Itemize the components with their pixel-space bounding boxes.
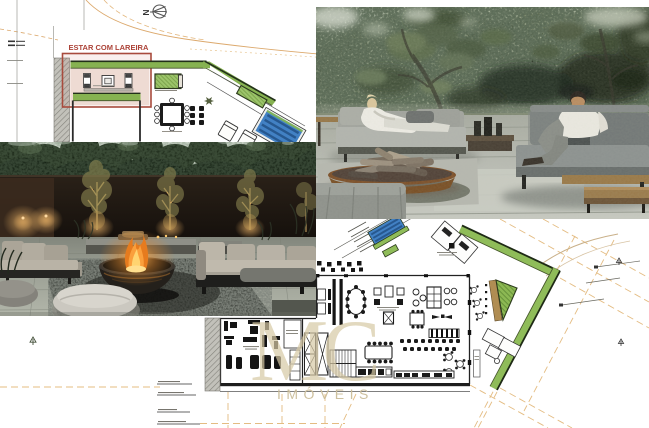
svg-text:IMÓVEIS: IMÓVEIS: [277, 386, 374, 402]
svg-text:ESTAR COM LAREIRA: ESTAR COM LAREIRA: [69, 43, 149, 52]
svg-text:N: N: [141, 9, 151, 15]
